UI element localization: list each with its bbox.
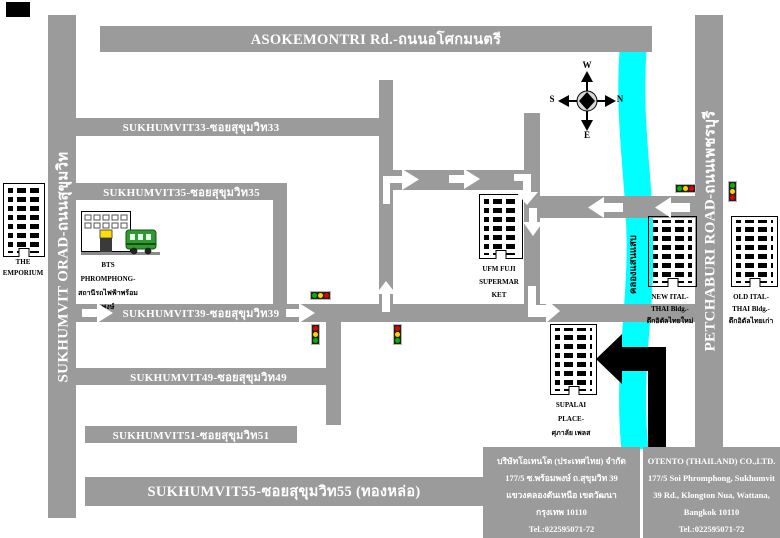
road-middle-vertical <box>379 80 393 322</box>
info-line: 39 Rd., Klongton Nua, Wattana, <box>643 487 780 504</box>
new-ital-label-line: ตึกอิตัลไทยใหม่ <box>640 315 700 327</box>
info-line: Bangkok 10110 <box>643 504 780 521</box>
road-canal-crossing <box>524 196 695 218</box>
company-info-thai: บริษัทโอเทนโต (ประเทศไทย) จำกัด 177/5 ซ.… <box>483 447 640 538</box>
info-line: บริษัทโอเทนโต (ประเทศไทย) จำกัด <box>483 453 640 470</box>
emporium-label: THE EMPORIUM <box>0 257 46 279</box>
ufm-building-icon <box>479 194 523 259</box>
old-ital-label-line: ตึกอิตัลไทยเก่า <box>722 315 780 327</box>
bts-label-line: PHROMPHONG- <box>58 272 158 286</box>
compass-w-label: W <box>580 60 594 70</box>
road-label-text: ASOKEMONTRI Rd.-ถนนอโศกมนตรี <box>251 28 501 51</box>
info-line: OTENTO (THAILAND) CO.,LTD. <box>643 453 780 470</box>
info-line: Tel.:022595071-72 <box>643 521 780 538</box>
road-label-soi51: SUKHUMVIT51-ซอยสุขุมวิท51 <box>85 426 297 443</box>
bts-label-line: สถานีรถไฟฟ้าพร้อม <box>58 286 158 300</box>
traffic-light-icon <box>310 291 331 300</box>
road-label-petchaburi: PETCHABURI ROAD-ถนนเพชรบุรี <box>695 15 723 447</box>
road-label-soi33: SUKHUMVIT33-ซอยสุขุมวิท33 <box>76 118 326 136</box>
new-ital-label-line: NEW ITAL- <box>640 291 700 303</box>
bts-station-icon <box>81 211 131 257</box>
new-ital-label-line: THAI Bldg.- <box>640 303 700 315</box>
bts-train-icon <box>124 226 160 258</box>
road-label-soi55: SUKHUMVIT55-ซอยสุขุมวิท55 (ทองหล่อ) <box>85 477 483 506</box>
road-label-text: PETCHABURI ROAD-ถนนเพชรบุรี <box>697 111 721 352</box>
old-ital-label-line: THAI Bldg.- <box>722 303 780 315</box>
compass-rose-icon <box>558 71 616 131</box>
supalai-label-line: PLACE- <box>538 412 604 426</box>
office-pointer-arrow <box>596 334 666 447</box>
company-info-english: OTENTO (THAILAND) CO.,LTD. 177/5 Soi Phr… <box>643 447 780 538</box>
road-label-text: SUKHUMVIT51-ซอยสุขุมวิท51 <box>113 426 270 444</box>
road-label-text: SUKHUMVIT35-ซอยสุขุมวิท35 <box>103 183 260 201</box>
ufm-label-line: UFM FUJI <box>468 263 530 276</box>
info-line: Tel.:022595071-72 <box>483 521 640 538</box>
supalai-building-icon <box>550 324 597 395</box>
road-label-text: SUKHUMVIT33-ซอยสุขุมวิท33 <box>123 118 280 136</box>
old-ital-thai-building-icon <box>731 216 778 287</box>
road-mid-east-link <box>379 170 540 190</box>
supalai-label: SUPALAI PLACE- ศุภาลัย เพลส <box>538 398 604 440</box>
info-line: 177/5 ซ.พร้อมพงษ์ ถ.สุขุมวิท 39 <box>483 470 640 487</box>
traffic-light-icon <box>728 181 737 202</box>
bts-label-line: BTS <box>58 258 158 272</box>
location-map: ASOKEMONTRI Rd.-ถนนอโศกมนตรี SUKHUMVIT O… <box>0 0 780 538</box>
canal-label-text: คลองแสนแสบ <box>626 235 641 294</box>
new-ital-thai-building-icon <box>648 216 697 287</box>
emporium-label-line: THE <box>0 257 46 268</box>
traffic-light-icon <box>311 324 320 345</box>
road-label-soi49: SUKHUMVIT49-ซอยสุขุมวิท49 <box>76 368 341 385</box>
old-ital-label-line: OLD ITAL- <box>722 291 780 303</box>
traffic-light-icon <box>393 324 402 345</box>
road-soi35-connector <box>273 183 287 322</box>
compass-s-label: S <box>545 94 559 104</box>
emporium-building-icon <box>3 183 45 257</box>
info-line: 177/5 Soi Phromphong, Sukhumvit <box>643 470 780 487</box>
road-label-asokemontri: ASOKEMONTRI Rd.-ถนนอโศกมนตรี <box>100 26 652 52</box>
road-label-text: SUKHUMVIT55-ซอยสุขุมวิท55 (ทองหล่อ) <box>147 480 420 503</box>
compass-e-label: E <box>580 130 594 140</box>
supalai-label-line: SUPALAI <box>538 398 604 412</box>
road-label-text: SUKHUMVIT49-ซอยสุขุมวิท49 <box>130 368 287 386</box>
ufm-label-line: KET <box>468 289 530 302</box>
supalai-label-line: ศุภาลัย เพลส <box>538 426 604 440</box>
info-line: แขวงคลองตันเหนือ เขตวัฒนา <box>483 487 640 504</box>
old-ital-thai-label: OLD ITAL- THAI Bldg.- ตึกอิตัลไทยเก่า <box>722 291 780 327</box>
traffic-light-icon <box>675 184 696 193</box>
ufm-label: UFM FUJI SUPERMAR KET <box>468 263 530 302</box>
ufm-label-line: SUPERMAR <box>468 276 530 289</box>
bts-label-line: พงษ์ <box>58 300 158 314</box>
new-ital-thai-label: NEW ITAL- THAI Bldg.- ตึกอิตัลไทยใหม่ <box>640 291 700 327</box>
bts-label: BTS PHROMPHONG- สถานีรถไฟฟ้าพร้อม พงษ์ <box>58 258 158 314</box>
emporium-label-line: EMPORIUM <box>0 268 46 279</box>
compass-n-label: N <box>613 94 627 104</box>
road-label-soi35: SUKHUMVIT35-ซอยสุขุมวิท35 <box>76 183 287 200</box>
info-line: กรุงเทพ 10110 <box>483 504 640 521</box>
corner-building-icon <box>6 2 30 17</box>
